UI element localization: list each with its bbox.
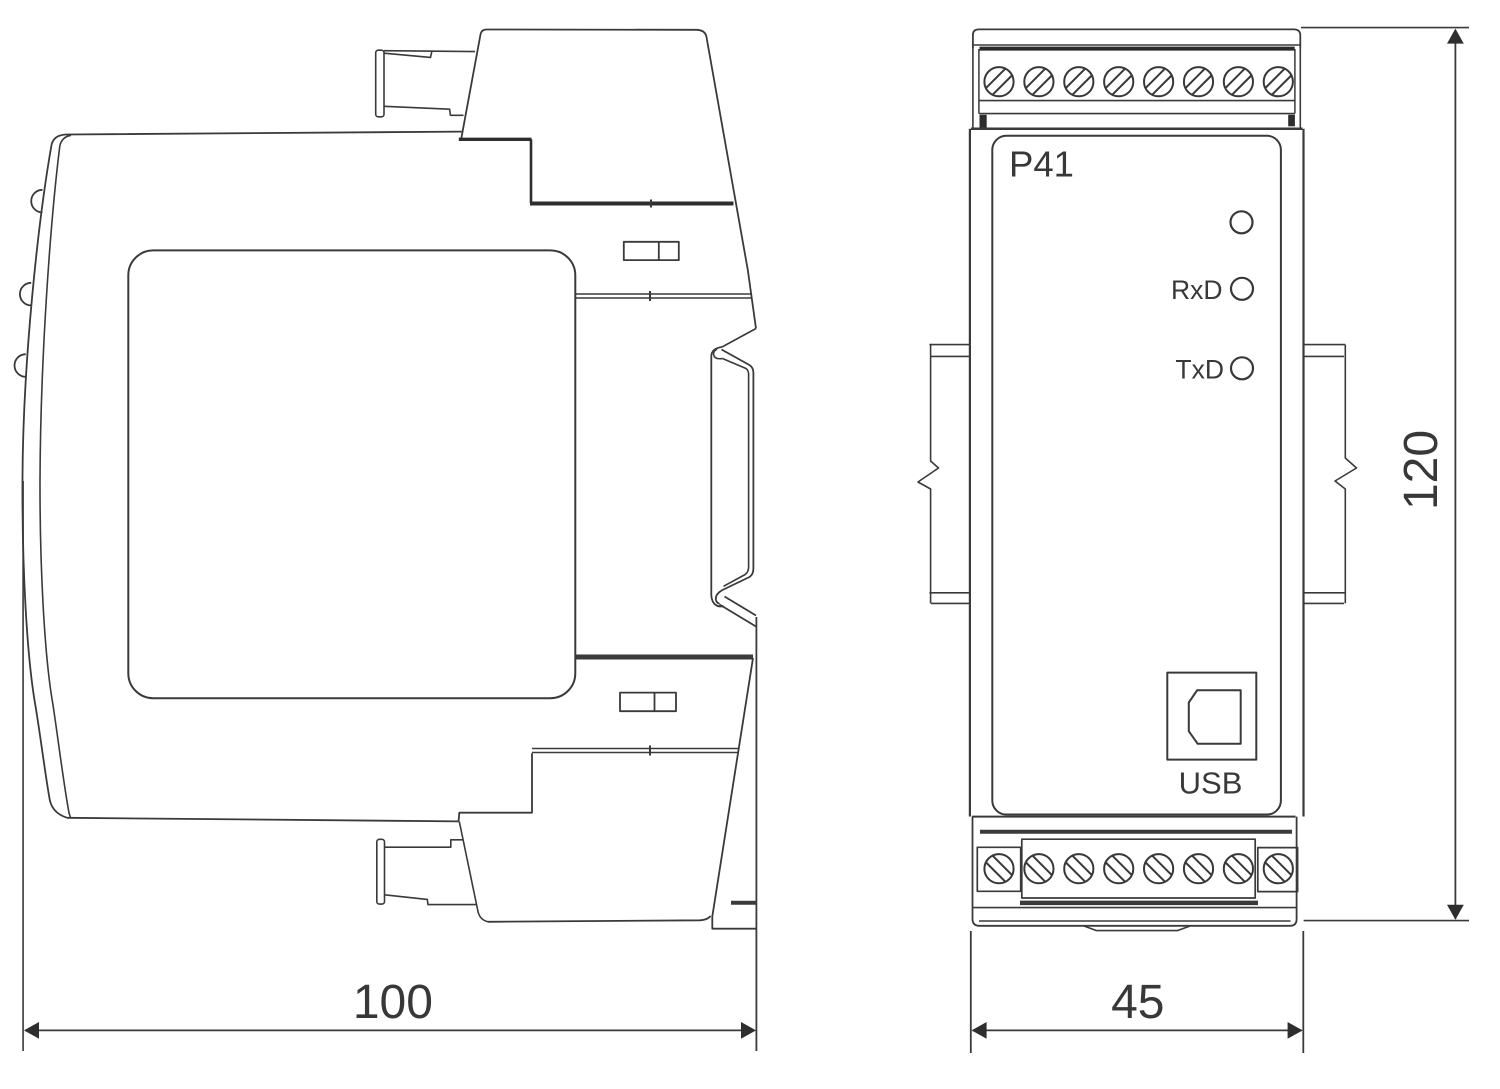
svg-text:RxD: RxD — [1171, 275, 1223, 305]
svg-text:USB: USB — [1179, 766, 1243, 801]
svg-text:TxD: TxD — [1175, 355, 1224, 385]
svg-text:45: 45 — [1111, 976, 1164, 1029]
svg-text:100: 100 — [353, 976, 433, 1029]
svg-text:P41: P41 — [1009, 144, 1074, 185]
svg-text:120: 120 — [1395, 430, 1448, 510]
